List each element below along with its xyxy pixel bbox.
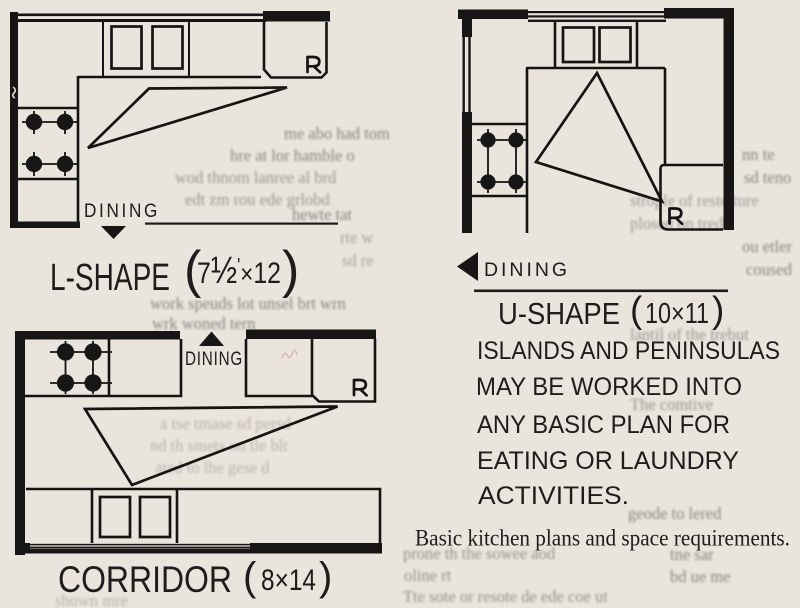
svg-text:strople of resto ture: strople of resto ture [630, 191, 759, 210]
svg-text:DINING: DINING [84, 200, 160, 222]
svg-text:sd re: sd re [342, 251, 374, 270]
svg-text:ou etler: ou etler [742, 237, 792, 256]
svg-text:wrk woned tern: wrk woned tern [152, 314, 256, 333]
svg-text:bd ue me: bd ue me [670, 567, 730, 586]
svg-text:ated to lhe gese d: ated to lhe gese d [155, 458, 270, 477]
svg-text:Tte sote or resote de ede coe: Tte sote or resote de ede coe ut [403, 587, 608, 606]
svg-text:): ) [282, 241, 299, 299]
svg-text:Basic kitchen plans and space: Basic kitchen plans and space requiremen… [415, 526, 790, 551]
svg-text:CORRIDOR: CORRIDOR [58, 559, 232, 600]
svg-text:ISLANDS AND PENINSULAS: ISLANDS AND PENINSULAS [477, 337, 780, 365]
svg-text:ANY BASIC PLAN FOR: ANY BASIC PLAN FOR [477, 411, 730, 439]
svg-text:ACTIVITIES.: ACTIVITIES. [478, 482, 629, 510]
svg-text:hre at lor hamble o: hre at lor hamble o [230, 146, 355, 165]
svg-text:8×14: 8×14 [261, 564, 316, 597]
svg-text:oline rt: oline rt [404, 566, 452, 585]
svg-text:hewte tat: hewte tat [292, 205, 352, 224]
svg-text:(: ( [243, 555, 257, 599]
svg-text:coused: coused [746, 260, 793, 279]
svg-text:nn te: nn te [742, 145, 775, 164]
svg-text:rte w: rte w [340, 228, 374, 247]
svg-text:): ) [712, 290, 724, 331]
svg-text:DINING: DINING [484, 259, 570, 281]
svg-text:): ) [319, 555, 332, 599]
svg-text:EATING OR LAUNDRY: EATING OR LAUNDRY [477, 447, 739, 475]
svg-text:geode to lered: geode to lered [628, 504, 722, 523]
svg-text:sd teno: sd teno [744, 168, 791, 187]
svg-text:work speuds lot unsel brt wrn: work speuds lot unsel brt wrn [150, 294, 346, 313]
svg-text:(: ( [630, 290, 643, 331]
svg-text:MAY BE WORKED INTO: MAY BE WORKED INTO [476, 373, 742, 401]
svg-text:wod thnom lanree al brd: wod thnom lanree al brd [175, 168, 337, 187]
svg-text:10×11: 10×11 [645, 298, 709, 330]
svg-text:L-SHAPE: L-SHAPE [50, 257, 170, 299]
svg-text:U-SHAPE: U-SHAPE [498, 296, 620, 331]
svg-text:me abo had tom: me abo had tom [284, 124, 390, 143]
svg-text:DINING: DINING [185, 348, 243, 370]
